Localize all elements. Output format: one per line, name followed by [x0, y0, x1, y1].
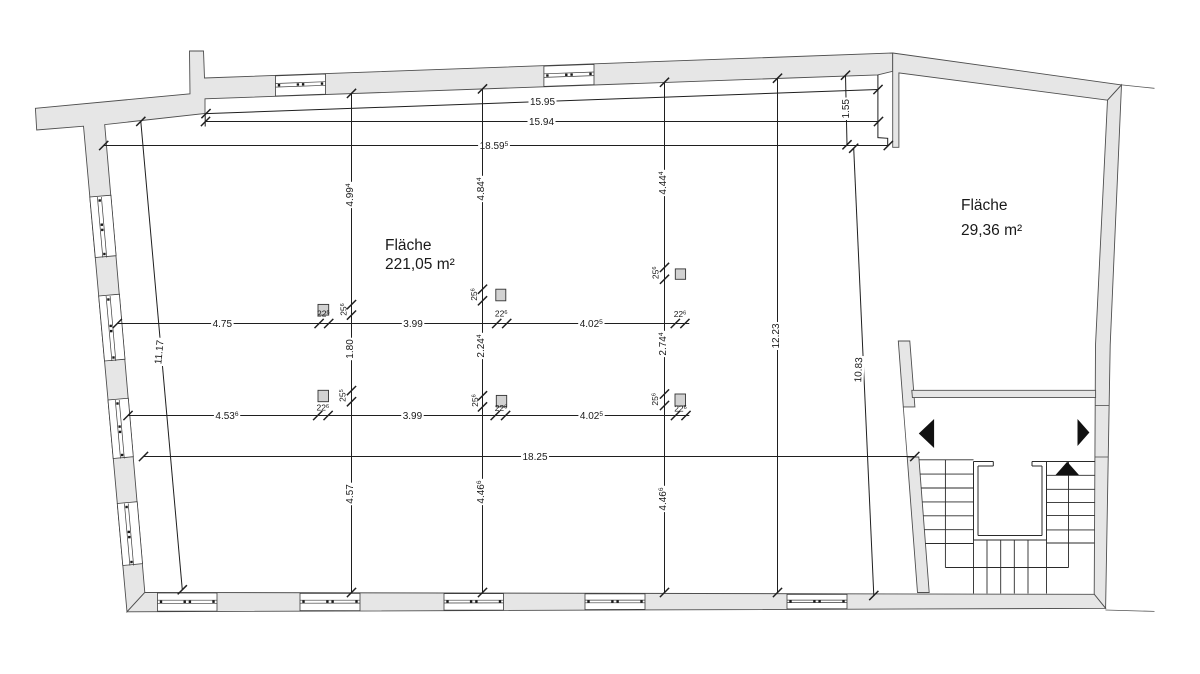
svg-text:221,05 m²: 221,05 m² [385, 256, 455, 273]
svg-text:11.17: 11.17 [153, 339, 166, 365]
svg-text:3.99: 3.99 [403, 319, 423, 330]
svg-text:Fläche: Fläche [385, 237, 432, 254]
svg-text:15.94: 15.94 [529, 117, 554, 128]
svg-text:15.95: 15.95 [530, 97, 555, 108]
svg-text:1.55: 1.55 [841, 99, 852, 119]
svg-text:3.99: 3.99 [403, 411, 423, 422]
svg-text:4.57: 4.57 [345, 484, 356, 504]
svg-text:18.25: 18.25 [523, 452, 548, 463]
svg-text:1.80: 1.80 [345, 339, 356, 359]
svg-text:12.23: 12.23 [771, 323, 782, 348]
svg-text:Fläche: Fläche [961, 197, 1008, 214]
svg-text:10.83: 10.83 [853, 357, 865, 383]
svg-text:29,36 m²: 29,36 m² [961, 222, 1022, 239]
svg-text:18.595: 18.595 [480, 141, 509, 152]
svg-text:4.75: 4.75 [213, 319, 233, 330]
